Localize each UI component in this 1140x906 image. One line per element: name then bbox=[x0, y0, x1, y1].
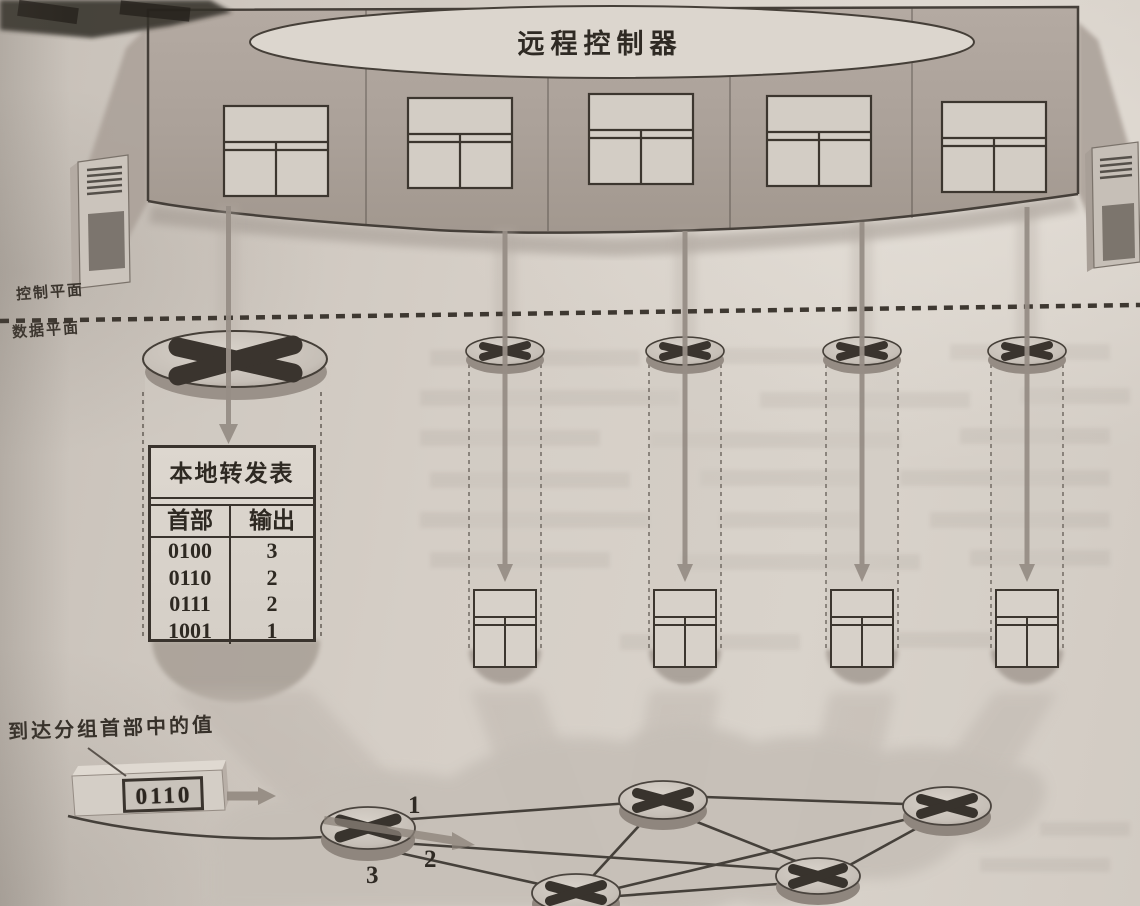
remote-controller-label: 远程控制器 bbox=[450, 22, 750, 61]
router-icon bbox=[903, 787, 991, 836]
forwarding-table-icon bbox=[408, 98, 512, 188]
port-label-2: 2 bbox=[424, 846, 437, 874]
big-router-icon bbox=[143, 331, 327, 400]
output-col-label: 输出 bbox=[229, 506, 313, 536]
header-col-label: 首部 bbox=[151, 506, 229, 536]
forwarding-table-title: 本地转发表 bbox=[151, 448, 313, 497]
forwarding-table-icon bbox=[996, 590, 1058, 667]
forwarding-table-icon bbox=[224, 106, 328, 196]
table-row: 0100 3 bbox=[151, 538, 313, 565]
forwarding-table-icon bbox=[654, 590, 716, 667]
row-header: 1001 bbox=[151, 618, 229, 645]
local-table-icons bbox=[474, 590, 1058, 667]
forwarding-table-divider bbox=[151, 497, 313, 506]
table-row: 0111 2 bbox=[151, 591, 313, 618]
row-header: 0100 bbox=[151, 538, 229, 565]
port-label-3: 3 bbox=[366, 862, 379, 890]
router-icon bbox=[776, 858, 860, 905]
router-icon bbox=[619, 781, 707, 830]
local-forwarding-table: 本地转发表 首部 输出 0100 3 0110 2 0111 2 1001 1 bbox=[148, 445, 316, 642]
row-header: 0110 bbox=[151, 565, 229, 592]
packet-header-value: 0110 bbox=[125, 780, 202, 813]
forwarding-table-icon bbox=[767, 96, 871, 186]
table-row: 1001 1 bbox=[151, 618, 313, 645]
row-output: 2 bbox=[229, 565, 313, 592]
port-label-1: 1 bbox=[408, 792, 421, 820]
forwarding-table-header-row: 首部 输出 bbox=[151, 506, 313, 538]
forwarding-table-icon bbox=[589, 94, 693, 184]
table-row: 0110 2 bbox=[151, 565, 313, 592]
row-header: 0111 bbox=[151, 591, 229, 618]
row-output: 3 bbox=[229, 538, 313, 565]
forwarding-table-icon bbox=[942, 102, 1046, 192]
server-tower-icon-left bbox=[70, 155, 130, 292]
book-figure-page: 远程控制器 控制平面 数据平面 本地转发表 首部 输出 0100 3 0110 … bbox=[0, 0, 1140, 906]
server-tower-icon-right bbox=[1085, 142, 1140, 272]
forwarding-table-icon bbox=[831, 590, 893, 667]
router-icon bbox=[532, 874, 620, 906]
forwarding-table-body: 0100 3 0110 2 0111 2 1001 1 bbox=[151, 538, 313, 644]
row-output: 2 bbox=[229, 591, 313, 618]
plane-divider-dashed-line bbox=[0, 305, 1140, 321]
forwarding-table-icon bbox=[474, 590, 536, 667]
row-output: 1 bbox=[229, 618, 313, 645]
